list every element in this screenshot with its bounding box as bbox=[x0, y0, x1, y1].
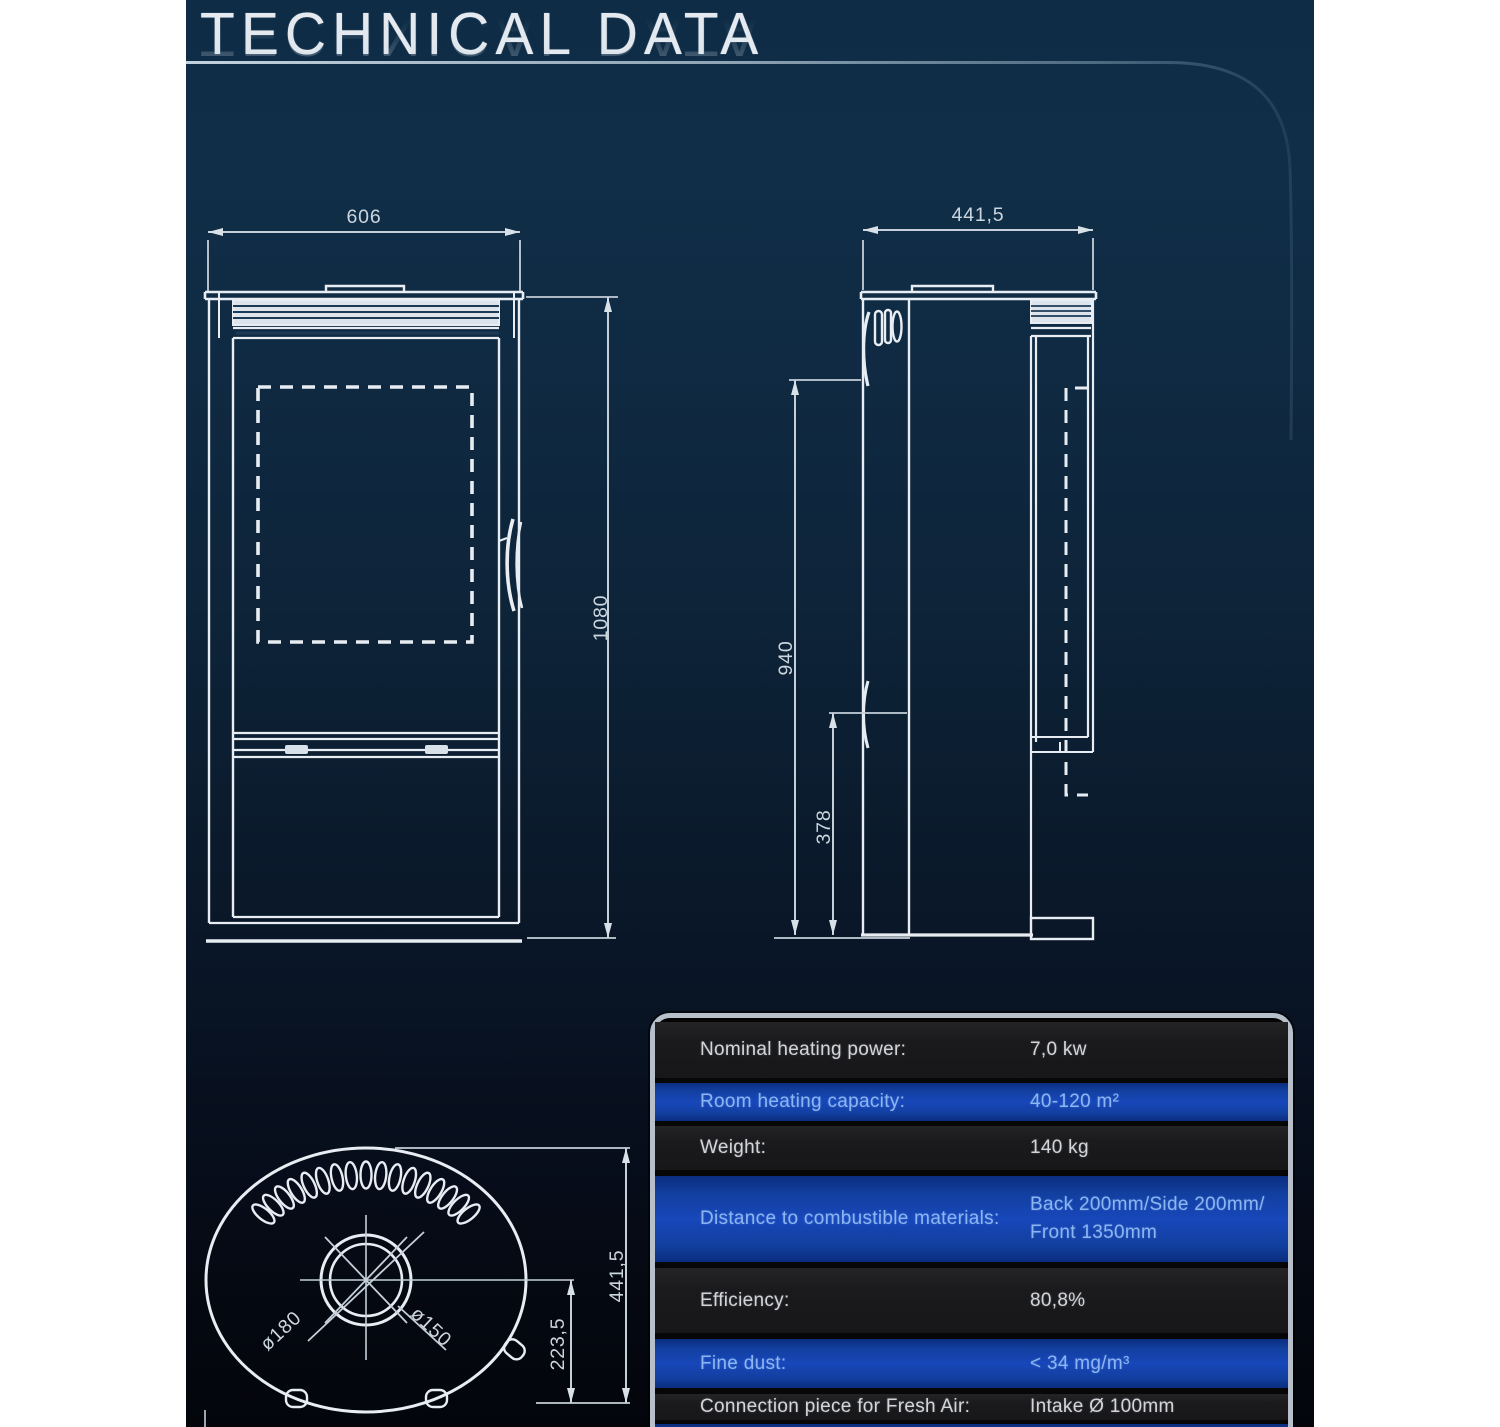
side-base-height-label: 378 bbox=[813, 810, 835, 845]
top-center-label: 223,5 bbox=[547, 1318, 569, 1371]
side-flue-outline bbox=[1066, 388, 1088, 795]
row-label: Room heating capacity: bbox=[700, 1091, 905, 1113]
table-row: Room heating capacity: 40-120 m² bbox=[655, 1083, 1288, 1121]
front-glass-outline bbox=[258, 387, 472, 642]
row-value: 40-120 m² bbox=[1030, 1091, 1119, 1113]
front-width-dimension: 606 bbox=[208, 206, 520, 292]
sheet-background: TECHNICAL DATA TECHNICAL DATA 606 bbox=[186, 0, 1314, 1427]
row-value: Back 200mm/Side 200mm/Front 1350mm bbox=[1030, 1191, 1265, 1247]
top-center-dimension: 223,5 bbox=[547, 1280, 575, 1403]
title-rule-swoosh bbox=[186, 63, 1292, 441]
table-row: Fine dust: < 34 mg/m³ bbox=[655, 1339, 1288, 1388]
table-row: Weight: 140 kg bbox=[655, 1126, 1288, 1170]
flue-inner-diameter-label: ø150 bbox=[406, 1303, 456, 1352]
row-label: Distance to combustible materials: bbox=[700, 1208, 1000, 1230]
table-row: Distance to combustible materials: Back … bbox=[655, 1176, 1288, 1262]
row-label: Fine dust: bbox=[700, 1353, 786, 1375]
side-depth-dimension: 441,5 bbox=[863, 204, 1093, 290]
row-value: 7,0 kw bbox=[1030, 1039, 1087, 1061]
front-height-label: 1080 bbox=[590, 595, 612, 642]
flue-outer-diameter-label: ø180 bbox=[256, 1307, 306, 1356]
side-height-label: 940 bbox=[775, 641, 797, 676]
front-view-drawing: 606 bbox=[205, 206, 618, 941]
front-height-dimension: 1080 bbox=[526, 297, 618, 938]
row-value: < 34 mg/m³ bbox=[1030, 1353, 1130, 1375]
side-height-dimension: 940 bbox=[775, 380, 861, 935]
top-view-feet bbox=[286, 1336, 528, 1407]
front-width-label: 606 bbox=[347, 206, 382, 228]
row-value: 80,8% bbox=[1030, 1290, 1085, 1312]
row-label: Connection piece for Fresh Air: bbox=[700, 1396, 970, 1418]
side-depth-label: 441,5 bbox=[952, 204, 1005, 226]
row-label: Efficiency: bbox=[700, 1290, 790, 1312]
technical-data-sheet: { "title": "TECHNICAL DATA", "drawings":… bbox=[0, 0, 1500, 1427]
side-door-handle bbox=[864, 310, 902, 748]
table-row: Connection piece for Fresh Air: Intake Ø… bbox=[655, 1394, 1288, 1420]
top-view-diameter-callouts: ø180 ø150 bbox=[256, 1232, 456, 1355]
top-depth-dimension: 441,5 bbox=[395, 1148, 630, 1403]
side-view-drawing: 441,5 bbox=[774, 204, 1096, 939]
row-label: Nominal heating power: bbox=[700, 1039, 906, 1061]
spec-table: Nominal heating power: 7,0 kw Room heati… bbox=[650, 1013, 1293, 1427]
top-depth-label: 441,5 bbox=[606, 1250, 628, 1303]
side-base-height-dimension: 378 bbox=[813, 713, 907, 935]
row-label: Weight: bbox=[700, 1137, 766, 1159]
row-value: 140 kg bbox=[1030, 1137, 1089, 1159]
table-row: Efficiency: 80,8% bbox=[655, 1268, 1288, 1333]
table-row: Nominal heating power: 7,0 kw bbox=[655, 1022, 1288, 1078]
row-value: Intake Ø 100mm bbox=[1030, 1396, 1175, 1418]
top-view-drawing: ø180 ø150 441,5 bbox=[205, 1148, 630, 1427]
